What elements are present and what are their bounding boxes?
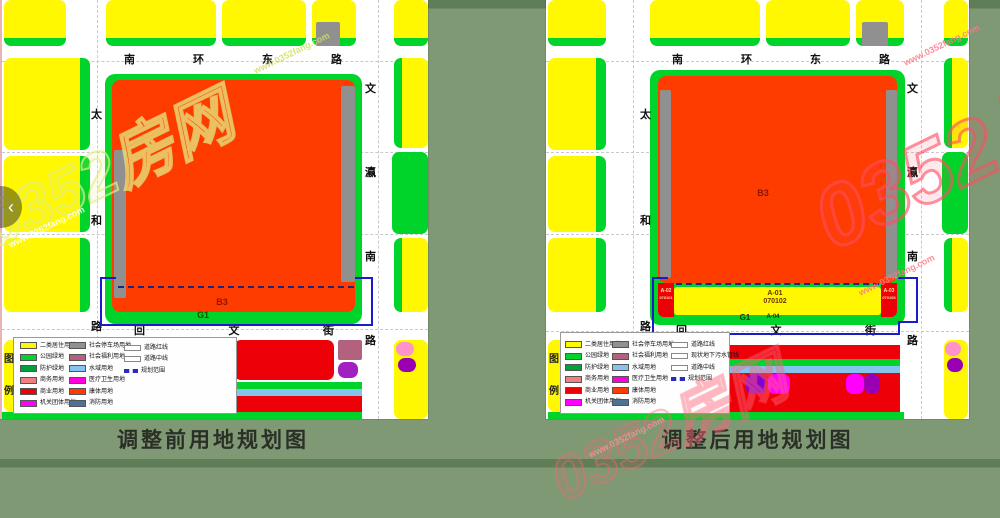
legend-label: 社会福利用地 [632,353,668,359]
legend-column-3: 道路红线道路中线规划范围 [124,344,168,374]
street-name-char: 南 [124,51,135,64]
street-name-nanhuandonglu: 南环东路 [672,51,890,64]
legend-swatch [612,353,629,360]
magenta-block [768,374,790,394]
legend-title-char: 例 [4,382,14,397]
legend-swatch [565,364,582,371]
city-block [944,58,968,148]
legend-row: 道路中线 [671,364,739,371]
parcel-label-a01: A-01 [745,290,805,297]
legend-label: 道路中线 [144,356,168,362]
legend-label: 公园绿地 [40,354,64,360]
parcel-label-a02-code: 070101 [656,295,676,300]
legend-row: 水域用地 [612,364,674,371]
legend-swatch [20,377,37,384]
street-name-char: 东 [810,51,821,64]
purple-block [947,358,963,372]
parcel-b3 [658,76,897,283]
map-panel-after: B3 A-01 070102 A-02 070101 A-03 070103 G… [546,0,969,419]
legend-swatch [20,342,37,349]
legend-row: 水域用地 [69,365,131,372]
street-name-char: 和 [91,212,102,228]
city-block [4,238,90,312]
planning-boundary [898,321,900,335]
city-block [394,58,428,148]
legend-row: 规划范围 [124,367,168,374]
gridline [921,0,922,419]
legend-row: 社会停车场用地 [612,341,674,348]
city-block [4,58,90,150]
legend-swatch [69,354,86,361]
park-block [392,152,428,234]
legend-swatch [69,400,86,407]
legend-label: 医疗卫生用地 [632,376,668,382]
legend-swatch [612,364,629,371]
legend-row: 社会停车场用地 [69,342,131,349]
parking-strip-west [660,90,671,278]
legend-swatch [671,353,688,359]
parking-strip-west [114,150,126,298]
legend-row: 康体用地 [69,388,131,395]
city-block [548,156,606,232]
legend-column-2: 社会停车场用地社会福利用地水域用地医疗卫生用地康体用地消防用地 [612,341,674,406]
city-block [650,0,760,46]
purple-block [338,362,358,378]
street-name-nanhuandonglu: 南环东路 [124,51,342,64]
street-name-char: 路 [907,332,918,348]
city-block [766,0,850,46]
legend-label: 道路红线 [691,342,715,348]
purple-block [864,374,880,394]
planning-boundary [916,277,918,321]
city-block [4,0,66,46]
legend-swatch [69,377,86,384]
magenta-block [846,374,864,394]
legend-swatch [565,353,582,360]
parcel-label-a01-code: 070102 [745,298,805,305]
parcel-label-g1: G1 [188,310,218,320]
legend-row: 商业用地 [20,388,76,395]
legend-swatch [612,341,629,348]
street-name-char: 南 [907,248,918,264]
legend-label: 消防用地 [632,399,656,405]
legend-label: 道路红线 [144,345,168,351]
street-name-char: 南 [672,51,683,64]
legend-label: 水域用地 [89,366,113,372]
legend-swatch [671,365,688,371]
pink-block [945,342,961,356]
legend-title-char: 图 [4,350,14,365]
legend-swatch [69,365,86,372]
legend-swatch [124,345,141,351]
city-block [222,0,306,46]
street-name-char: 文 [907,80,918,96]
street-name-char: 路 [365,332,376,348]
parcel-label-g1: G1 [730,313,760,322]
purple-block [398,358,416,372]
street-name-char: 文 [365,80,376,96]
legend-swatch [20,400,37,407]
city-block [548,58,606,150]
legend-row: 道路红线 [124,344,168,351]
street-name-char: 环 [741,51,752,64]
street-name-char: 路 [331,51,342,64]
legend-label: 防护绿地 [585,365,609,371]
legend-swatch [20,365,37,372]
legend-swatch [20,354,37,361]
planning-boundary [100,324,373,326]
parcel-label-a03: A-03 [879,288,899,294]
pink-block [396,342,414,356]
city-block [394,0,428,46]
parcel-label-b3: B3 [202,297,242,307]
planning-boundary [371,277,373,326]
street-name-char: 瀛 [365,164,376,180]
legend-swatch [612,387,629,394]
boundary-dashed-line [118,286,354,288]
parcel-label-a02: A-02 [656,288,676,294]
legend-row: 医疗卫生用地 [69,377,131,384]
parcel-b3 [112,80,355,312]
legend-label: 规划范围 [688,376,712,382]
legend-label: 康体用地 [89,389,113,395]
commercial-block [234,340,334,380]
legend-row: 社会福利用地 [612,353,674,360]
legend-row: 康体用地 [612,387,674,394]
boundary-dashed-line [676,283,879,285]
street-name-char: 太 [91,106,102,122]
parking-strip-east [886,90,897,278]
legend-label: 消防用地 [89,400,113,406]
city-block [548,238,606,312]
legend-row: 现状地下污水管线 [671,353,739,360]
parking-block [862,22,888,46]
street-name-char: 南 [365,248,376,264]
legend-swatch [612,376,629,383]
legend-swatch [69,342,86,349]
legend-row: 机关团体用地 [20,400,76,407]
legend-swatch [565,341,582,348]
city-block [944,0,968,46]
purple-block [746,374,766,394]
legend-row: 社会福利用地 [69,354,131,361]
legend-swatch [671,377,685,381]
legend-label: 商务用地 [585,376,609,382]
legend-swatch [565,399,582,406]
legend-swatch [124,369,138,373]
parking-block [316,22,340,46]
city-block [394,238,428,312]
legend-label: 规划范围 [141,368,165,374]
parking-strip-east [341,86,355,282]
gridline [378,0,379,419]
legend-label: 商务用地 [40,377,64,383]
legend-label: 商业用地 [585,388,609,394]
city-block [944,238,968,312]
legend-row: 二类居住用地 [20,342,76,349]
legend-label: 社会福利用地 [89,354,125,360]
street-name-char: 瀛 [907,164,918,180]
planning-boundary [100,277,116,279]
street-name-char: 东 [262,51,273,64]
city-block [548,0,606,46]
legend-label: 商业用地 [40,389,64,395]
legend-swatch [565,387,582,394]
map-title-after: 调整后用地规划图 [546,424,969,454]
legend-column-2: 社会停车场用地社会福利用地水域用地医疗卫生用地康体用地消防用地 [69,342,131,407]
legend-row: 规划范围 [671,376,739,383]
park-block [942,152,968,234]
parcel-label-a04: A-04 [758,314,788,320]
legend-label: 康体用地 [632,388,656,394]
legend-label: 医疗卫生用地 [89,377,125,383]
map-title-before: 调整前用地规划图 [0,424,426,454]
legend-swatch [565,376,582,383]
legend-row: 消防用地 [69,400,131,407]
planning-boundary [355,277,373,279]
legend-swatch [671,342,688,348]
legend-row: 公园绿地 [20,354,76,361]
legend-row: 防护绿地 [20,365,76,372]
city-block [106,0,216,46]
street-name-char: 路 [879,51,890,64]
street-name-char: 太 [640,106,651,122]
legend-row: 道路红线 [671,341,739,348]
welfare-block [338,340,362,360]
parcel-label-a03-code: 070103 [879,295,899,300]
legend-label: 社会停车场用地 [632,342,674,348]
legend-row: 商务用地 [20,377,76,384]
planning-boundary [652,277,668,279]
legend-column-1: 二类居住用地公园绿地防护绿地商务用地商业用地机关团体用地 [20,342,76,407]
legend-swatch [124,356,141,362]
street-name-taihelu: 太和路 [639,106,652,334]
legend-label: 水域用地 [632,365,656,371]
legend-swatch [20,388,37,395]
legend-swatch [69,388,86,395]
legend-column-3: 道路红线现状地下污水管线道路中线规划范围 [671,341,739,383]
legend-label: 现状地下污水管线 [691,353,739,359]
planning-boundary [898,277,918,279]
planning-boundary [652,277,654,335]
legend-row: 医疗卫生用地 [612,376,674,383]
legend-row: 消防用地 [612,399,674,406]
map-panel-before: B3 G1 南环东路 太和路 文瀛南路 回文街 图 例 二类居住用地公园绿地防护… [0,0,428,419]
planning-boundary [898,321,918,323]
planning-boundary [100,277,102,326]
legend-label: 防护绿地 [40,366,64,372]
legend-swatch [612,399,629,406]
legend-title-char: 例 [549,382,559,397]
street-name-char: 环 [193,51,204,64]
legend-title-char: 图 [549,350,559,365]
street-name-char: 和 [640,212,651,228]
parcel-label-b3: B3 [743,188,783,198]
legend-row: 道路中线 [124,356,168,363]
legend-label: 道路中线 [691,365,715,371]
legend-label: 公园绿地 [585,353,609,359]
